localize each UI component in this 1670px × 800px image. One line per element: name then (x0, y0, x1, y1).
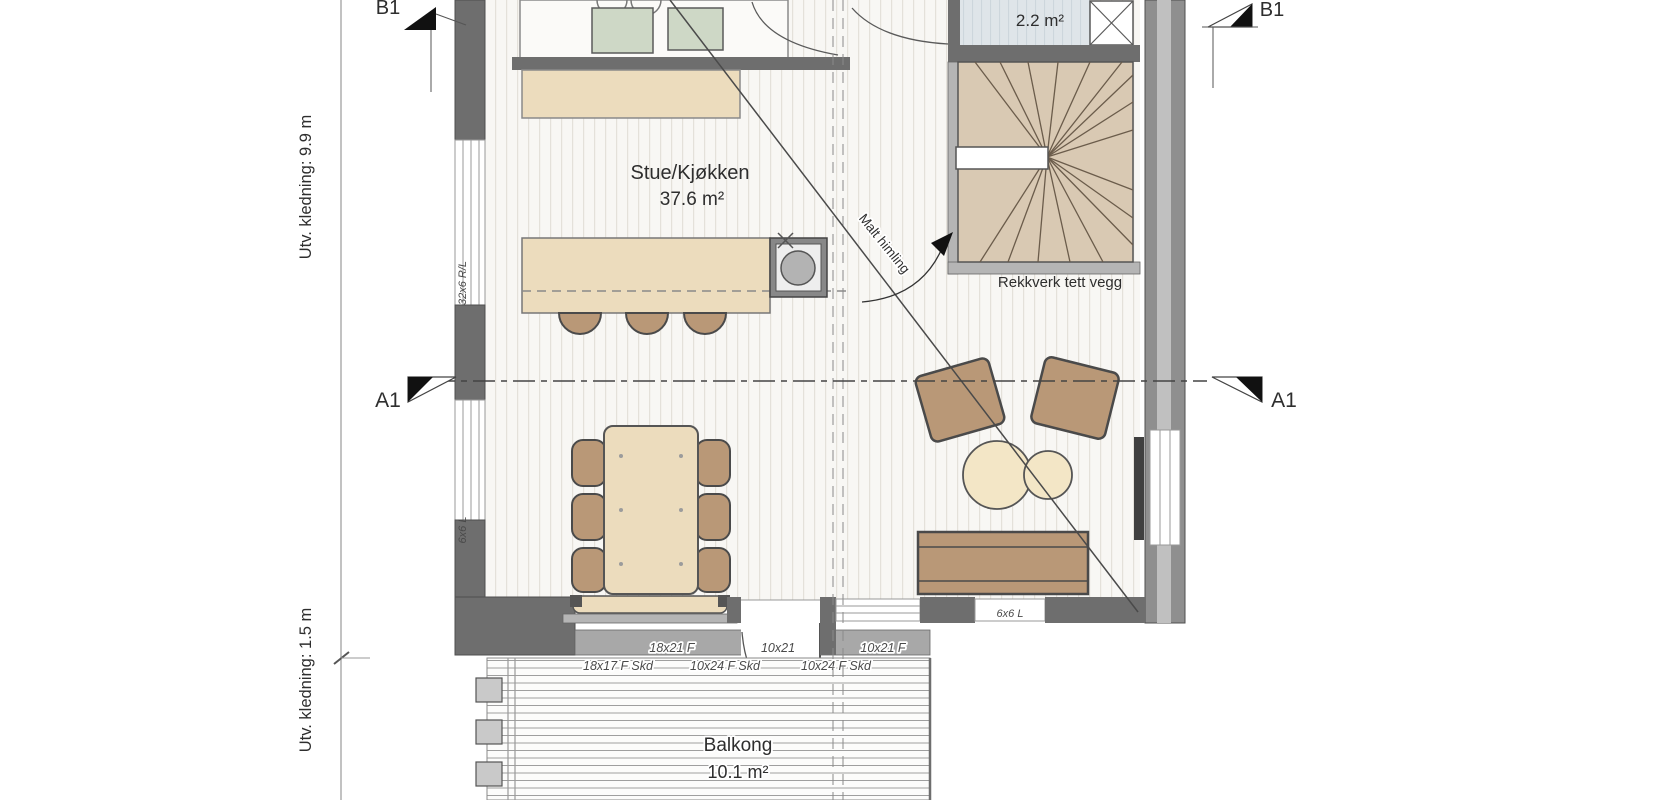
floorplan-drawing: Utv. kledning: 9.9 m Utv. kledning: 1.5 … (0, 0, 1670, 800)
section-marker-a1-left: A1 (375, 377, 456, 412)
kitchen-counter-top (520, 0, 788, 58)
opening-label: 10x24 F Skd (690, 659, 761, 673)
wc-bottom-wall (948, 45, 1140, 62)
a1-label: A1 (375, 389, 401, 412)
bottom-wall-note: 6x6 L (997, 608, 1024, 620)
dining-table (604, 426, 698, 594)
dining-set (572, 426, 730, 594)
wall-piece (920, 597, 975, 623)
section-marker-b1-left: B1 (376, 0, 466, 92)
kitchen-wall-counter (522, 70, 740, 118)
window-bottom (836, 599, 920, 621)
floorplan-canvas: Utv. kledning: 9.9 m Utv. kledning: 1.5 … (0, 0, 1670, 800)
appliance (592, 8, 653, 53)
wc-area-label: 2.2 m² (1016, 11, 1065, 30)
dim-label-bottom: Utv. kledning: 1.5 m (297, 608, 315, 753)
door-jamb (727, 597, 741, 623)
wall-note-bottom: 6x6 L (457, 517, 469, 544)
a1-label: A1 (1271, 389, 1297, 412)
kitchen-back-wall (512, 57, 850, 70)
balcony: Balkong 10.1 m² (476, 658, 930, 800)
section-marker-b1-right: B1 (1202, 0, 1284, 88)
door-jamb (820, 597, 836, 655)
opening-label: 18x17 F Skd (583, 659, 654, 673)
dim-label-top: Utv. kledning: 9.9 m (297, 115, 315, 260)
room-area: 37.6 m² (660, 189, 724, 210)
window-left-2 (455, 400, 485, 520)
room-name: Stue/Kjøkken (631, 162, 750, 184)
staircase: Rekkverk tett vegg (948, 62, 1140, 291)
window-right (1150, 430, 1180, 545)
opening-label: 10x24 F Skd (801, 659, 872, 673)
left-exterior-wall: 32x6 R/L 6x6 L (455, 0, 485, 600)
section-triangle (404, 7, 436, 30)
dimension-line-left: Utv. kledning: 9.9 m Utv. kledning: 1.5 … (297, 0, 370, 800)
balcony-name-label: Balkong (704, 735, 773, 756)
bar-stools (559, 313, 726, 334)
opening-label: 10x21 F (860, 641, 907, 655)
sliding-door (563, 595, 737, 623)
b1-label: B1 (1260, 0, 1284, 21)
balcony-posts (476, 678, 502, 786)
b1-label: B1 (376, 0, 400, 19)
opening-label: 18x21 F (649, 641, 696, 655)
stair-railing-note: Rekkverk tett vegg (998, 274, 1122, 291)
coffee-table (963, 441, 1031, 509)
wall-note-top: 32x6 R/L (457, 261, 469, 305)
stair-landing-rail (956, 147, 1048, 169)
appliance (668, 8, 723, 50)
tv-unit (1134, 437, 1144, 540)
right-exterior-wall (1134, 0, 1185, 623)
coffee-table (1024, 451, 1072, 499)
stair-bottom-wall (948, 262, 1140, 274)
opening-label: 10x21 (761, 641, 795, 655)
balcony-area-label: 10.1 m² (707, 762, 768, 782)
section-marker-a1-right: A1 (1212, 377, 1297, 412)
sofa (918, 532, 1088, 594)
wall-corner-block (455, 597, 575, 655)
